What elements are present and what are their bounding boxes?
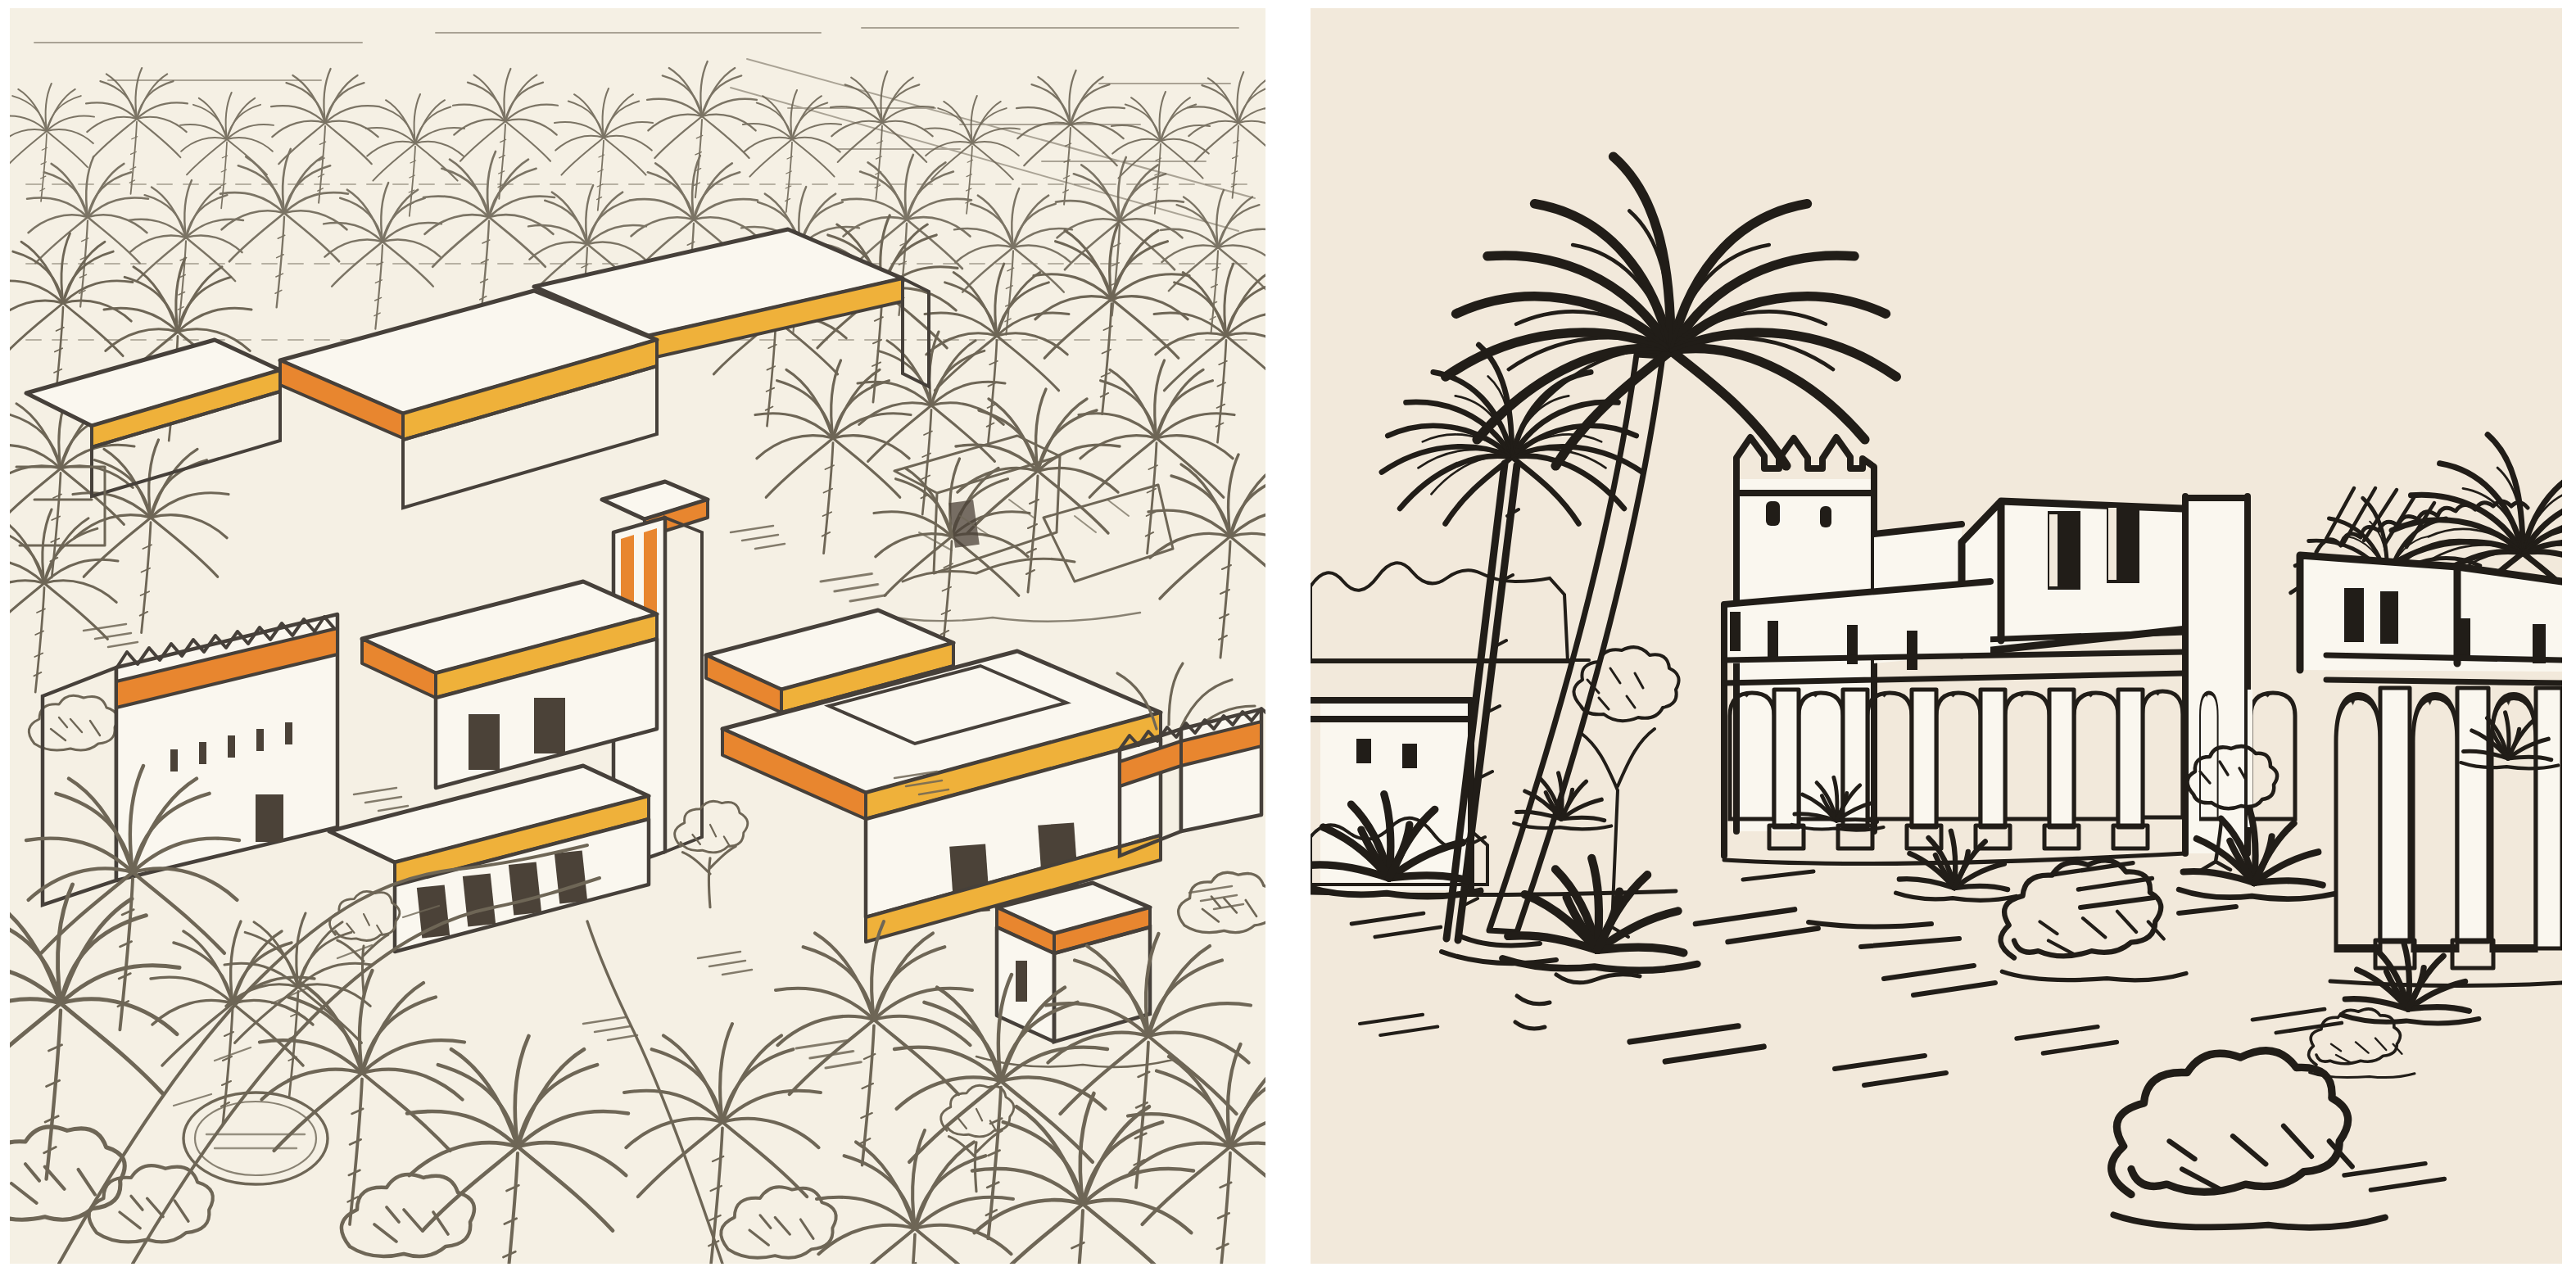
screenshot-canvas — [0, 0, 2576, 1276]
kasbah-ink-drawing — [1311, 8, 2562, 1264]
big-square-tower — [1962, 501, 2203, 655]
oasis-village-color-sketch — [10, 8, 1265, 1264]
right-illustration — [1311, 8, 2562, 1264]
left-illustration — [10, 8, 1265, 1264]
arcade-right — [2326, 655, 2562, 986]
